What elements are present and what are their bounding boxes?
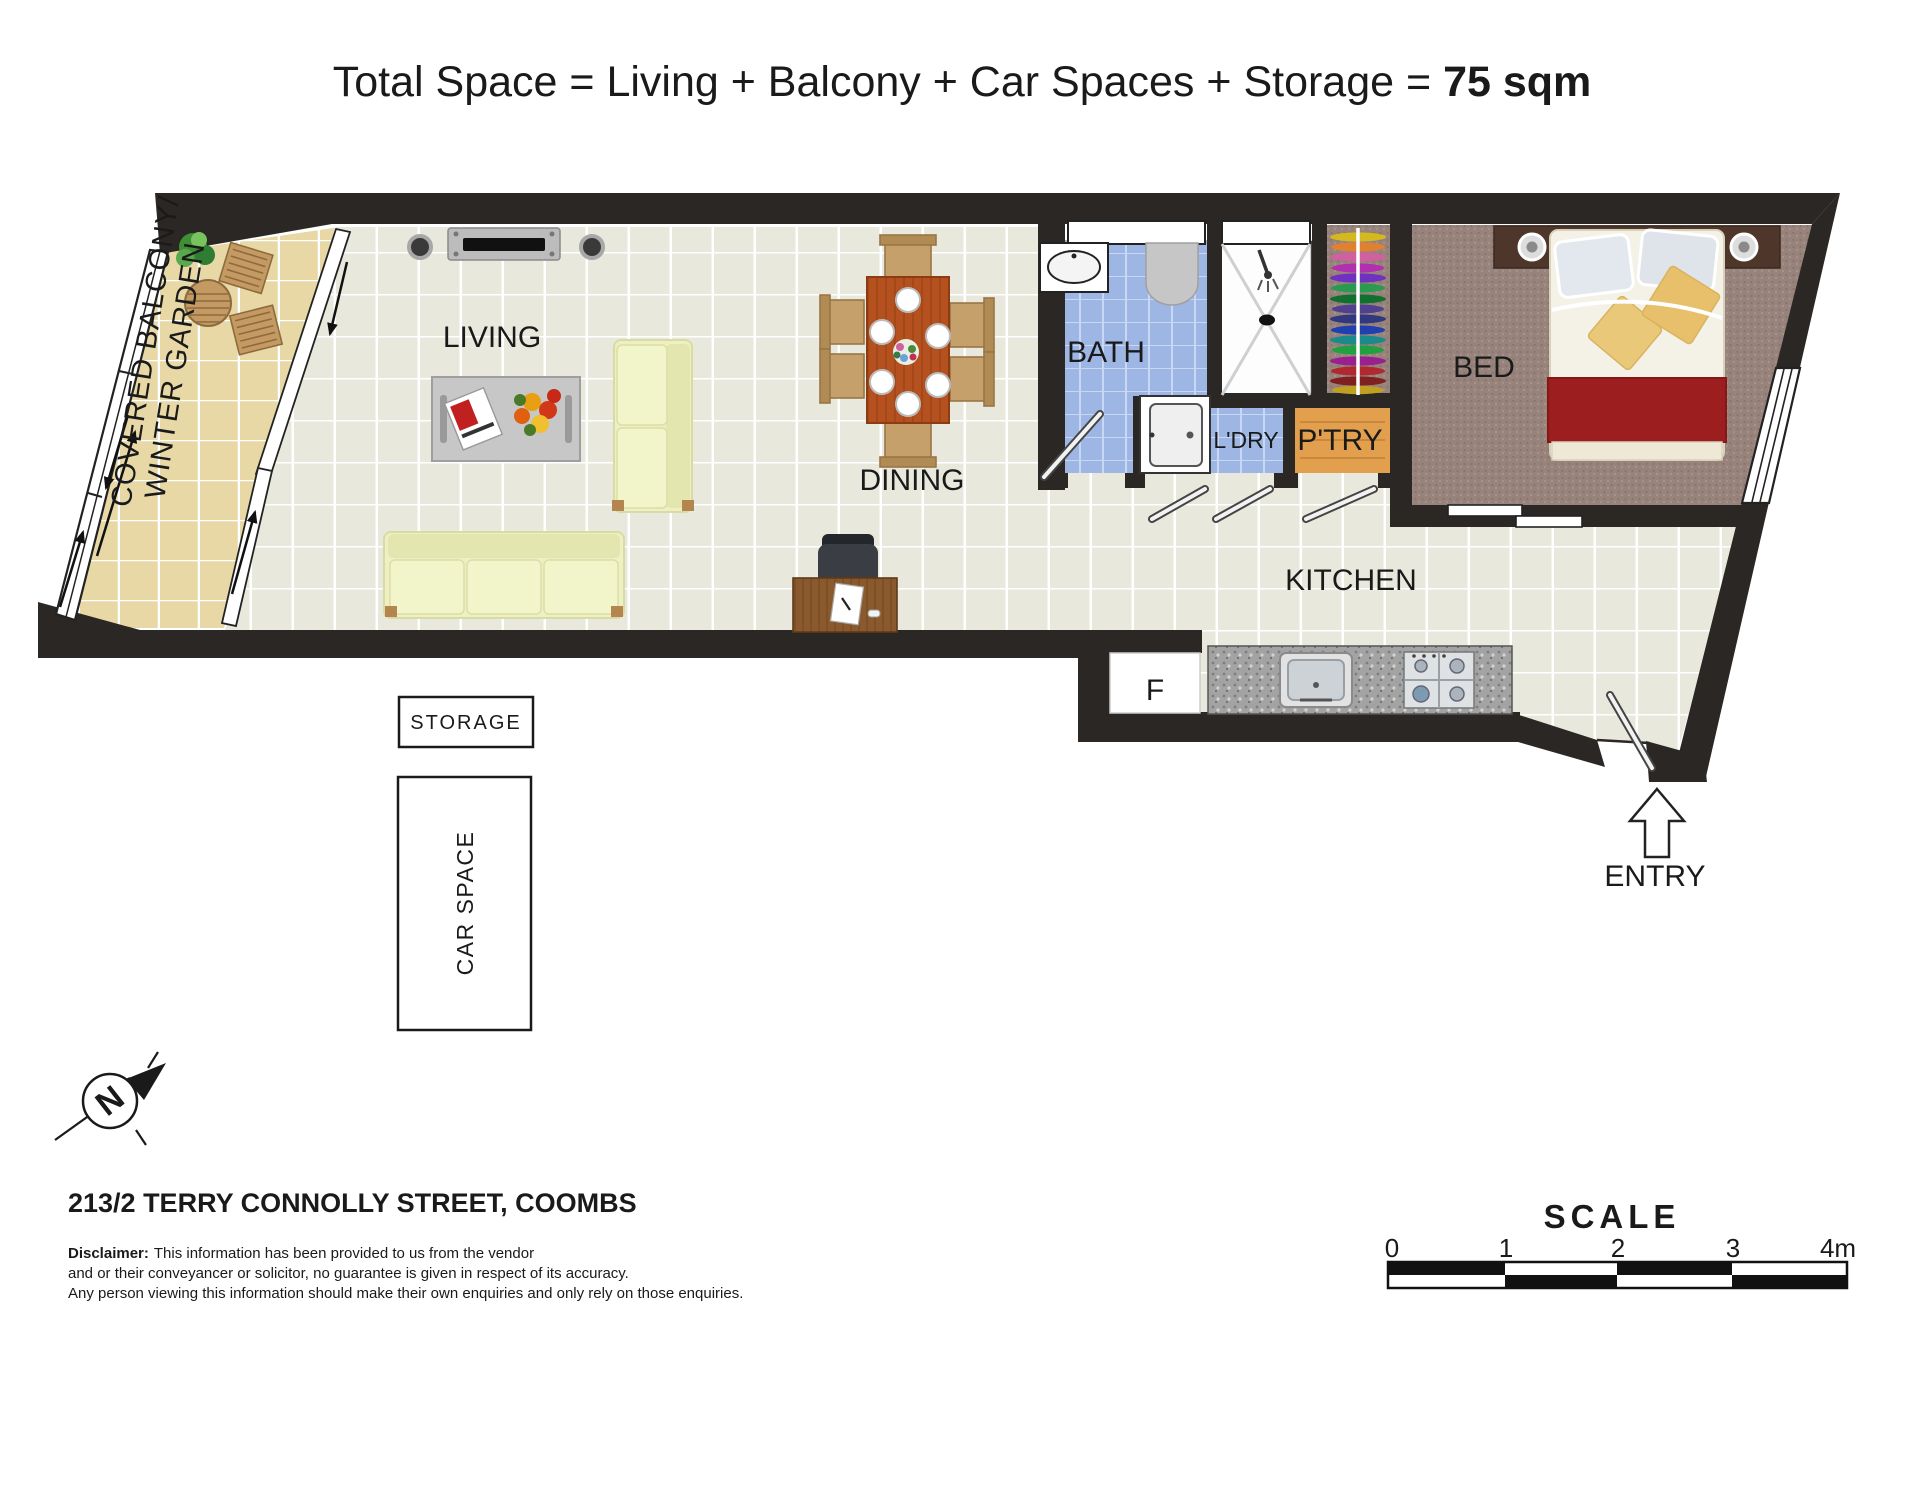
dining-chair-right2 bbox=[950, 352, 994, 406]
scale-tick-4: 4m bbox=[1820, 1233, 1856, 1263]
scale-tick-0: 0 bbox=[1385, 1233, 1399, 1263]
disclaimer: Disclaimer:This information has been pro… bbox=[68, 1245, 743, 1302]
tv-unit bbox=[448, 228, 560, 260]
bedside-lamp-right-center bbox=[1739, 242, 1750, 253]
disclaimer-line2: and or their conveyancer or solicitor, n… bbox=[68, 1265, 629, 1282]
scale-tick-1: 1 bbox=[1499, 1233, 1513, 1263]
label-laundry: L'DRY bbox=[1213, 427, 1278, 453]
label-entry: ENTRY bbox=[1604, 860, 1705, 893]
shower-window bbox=[1222, 221, 1310, 244]
bedroom-slider-panel2 bbox=[1516, 516, 1582, 527]
storage-box: STORAGE bbox=[399, 697, 533, 747]
label-dining: DINING bbox=[860, 464, 965, 497]
toilet bbox=[1146, 243, 1198, 305]
address: 213/2 TERRY CONNOLLY STREET, COOMBS bbox=[68, 1188, 637, 1218]
kitchen-fixtures bbox=[1110, 646, 1512, 714]
label-bed: BED bbox=[1453, 351, 1515, 384]
washing-machine bbox=[1140, 396, 1210, 473]
dining-chair-top bbox=[880, 235, 936, 279]
label-kitchen: KITCHEN bbox=[1285, 564, 1417, 597]
wall-kitchen-bottom bbox=[1078, 712, 1520, 742]
floorplan-canvas: Total Space = Living + Balcony + Car Spa… bbox=[0, 0, 1919, 1502]
disclaimer-label: Disclaimer: bbox=[68, 1245, 149, 1262]
label-living: LIVING bbox=[443, 321, 541, 354]
floorplan-page: Total Space = Living + Balcony + Car Spa… bbox=[0, 0, 1919, 1502]
dining-chair-bottom bbox=[880, 423, 936, 467]
kitchen-sink bbox=[1280, 653, 1352, 707]
entry-arrow bbox=[1630, 789, 1684, 857]
label-bath: BATH bbox=[1067, 336, 1145, 369]
bedroom-slider-panel1 bbox=[1448, 505, 1522, 516]
scale-tick-3: 3 bbox=[1726, 1233, 1740, 1263]
wall-shower-closet bbox=[1312, 222, 1327, 397]
title-total: 75 sqm bbox=[1443, 58, 1591, 106]
wall-block-bottom-seg3 bbox=[1274, 473, 1298, 488]
bed bbox=[1548, 229, 1726, 460]
page-title: Total Space = Living + Balcony + Car Spa… bbox=[333, 58, 1592, 106]
scale-ticks: 0 1 2 3 4m bbox=[1385, 1233, 1856, 1263]
scale-bar: SCALE 0 1 2 3 4m bbox=[1385, 1198, 1856, 1288]
disclaimer-line3: Any person viewing this information shou… bbox=[68, 1285, 743, 1302]
cooktop bbox=[1404, 652, 1474, 708]
compass: N bbox=[55, 1052, 166, 1145]
label-storage: STORAGE bbox=[410, 712, 521, 734]
label-pantry: P'TRY bbox=[1297, 424, 1382, 457]
car-space-box: CAR SPACE bbox=[398, 777, 531, 1030]
scale-tick-2: 2 bbox=[1611, 1233, 1625, 1263]
sofa-horizontal bbox=[384, 532, 624, 618]
scale-title: SCALE bbox=[1544, 1198, 1681, 1235]
disclaimer-line1: Disclaimer:This information has been pro… bbox=[68, 1245, 534, 1262]
dining-chair-left1 bbox=[820, 295, 864, 349]
bath-sink bbox=[1040, 243, 1108, 292]
wall-block-bottom-seg4 bbox=[1378, 473, 1412, 488]
speaker-left bbox=[409, 236, 431, 258]
wall-bottom-main bbox=[138, 630, 1110, 658]
bedside-lamp-left-center bbox=[1527, 242, 1538, 253]
sofa-vertical bbox=[612, 340, 694, 512]
wall-bath-shower bbox=[1207, 222, 1222, 408]
dining-chair-left2 bbox=[820, 349, 864, 403]
label-car-space: CAR SPACE bbox=[452, 831, 478, 976]
disclaimer-text1: This information has been provided to us… bbox=[154, 1245, 534, 1262]
label-fridge: F bbox=[1146, 674, 1164, 707]
dining-centerpiece bbox=[893, 339, 919, 365]
speaker-right bbox=[581, 236, 603, 258]
dining-chair-right1 bbox=[950, 298, 994, 352]
title-prefix: Total Space = Living + Balcony + Car Spa… bbox=[333, 58, 1443, 106]
scale-segments bbox=[1388, 1262, 1847, 1288]
wall-laundry-pantry bbox=[1283, 400, 1295, 473]
bath-window bbox=[1068, 221, 1205, 244]
wall-block-bottom-seg2 bbox=[1125, 473, 1145, 488]
coffee-table bbox=[432, 377, 580, 461]
